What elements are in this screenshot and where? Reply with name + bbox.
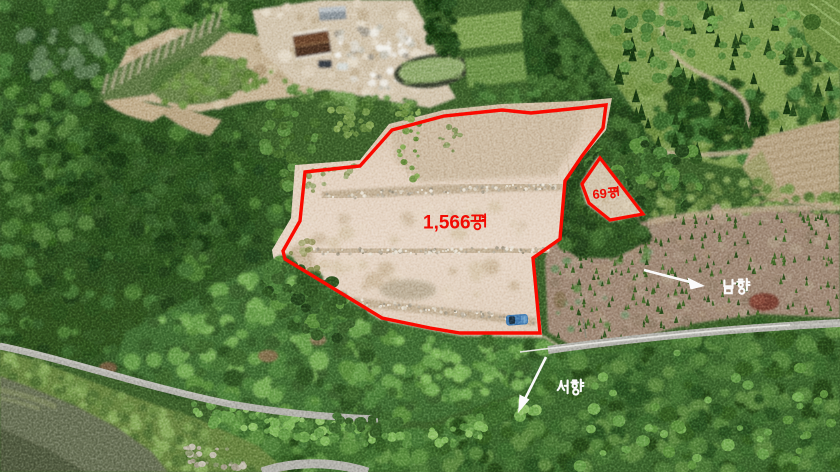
svg-text:69: 69	[592, 186, 608, 202]
svg-text:1,566: 1,566	[423, 213, 471, 234]
